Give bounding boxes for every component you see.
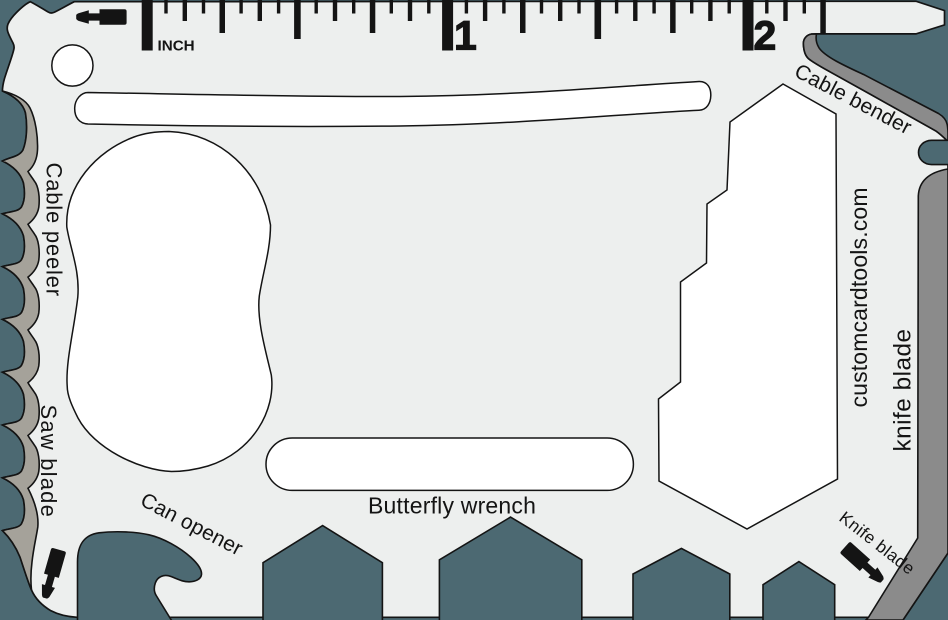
svg-text:knife blade: knife blade bbox=[890, 328, 917, 451]
svg-text:Cable peeler: Cable peeler bbox=[42, 163, 67, 297]
svg-text:Butterfly wrench: Butterfly wrench bbox=[368, 493, 536, 519]
svg-text:INCH: INCH bbox=[158, 37, 195, 54]
svg-text:customcardtools.com: customcardtools.com bbox=[846, 187, 872, 407]
svg-text:1: 1 bbox=[454, 13, 477, 59]
svg-text:2: 2 bbox=[754, 13, 777, 59]
svg-text:Saw blade: Saw blade bbox=[36, 405, 61, 519]
